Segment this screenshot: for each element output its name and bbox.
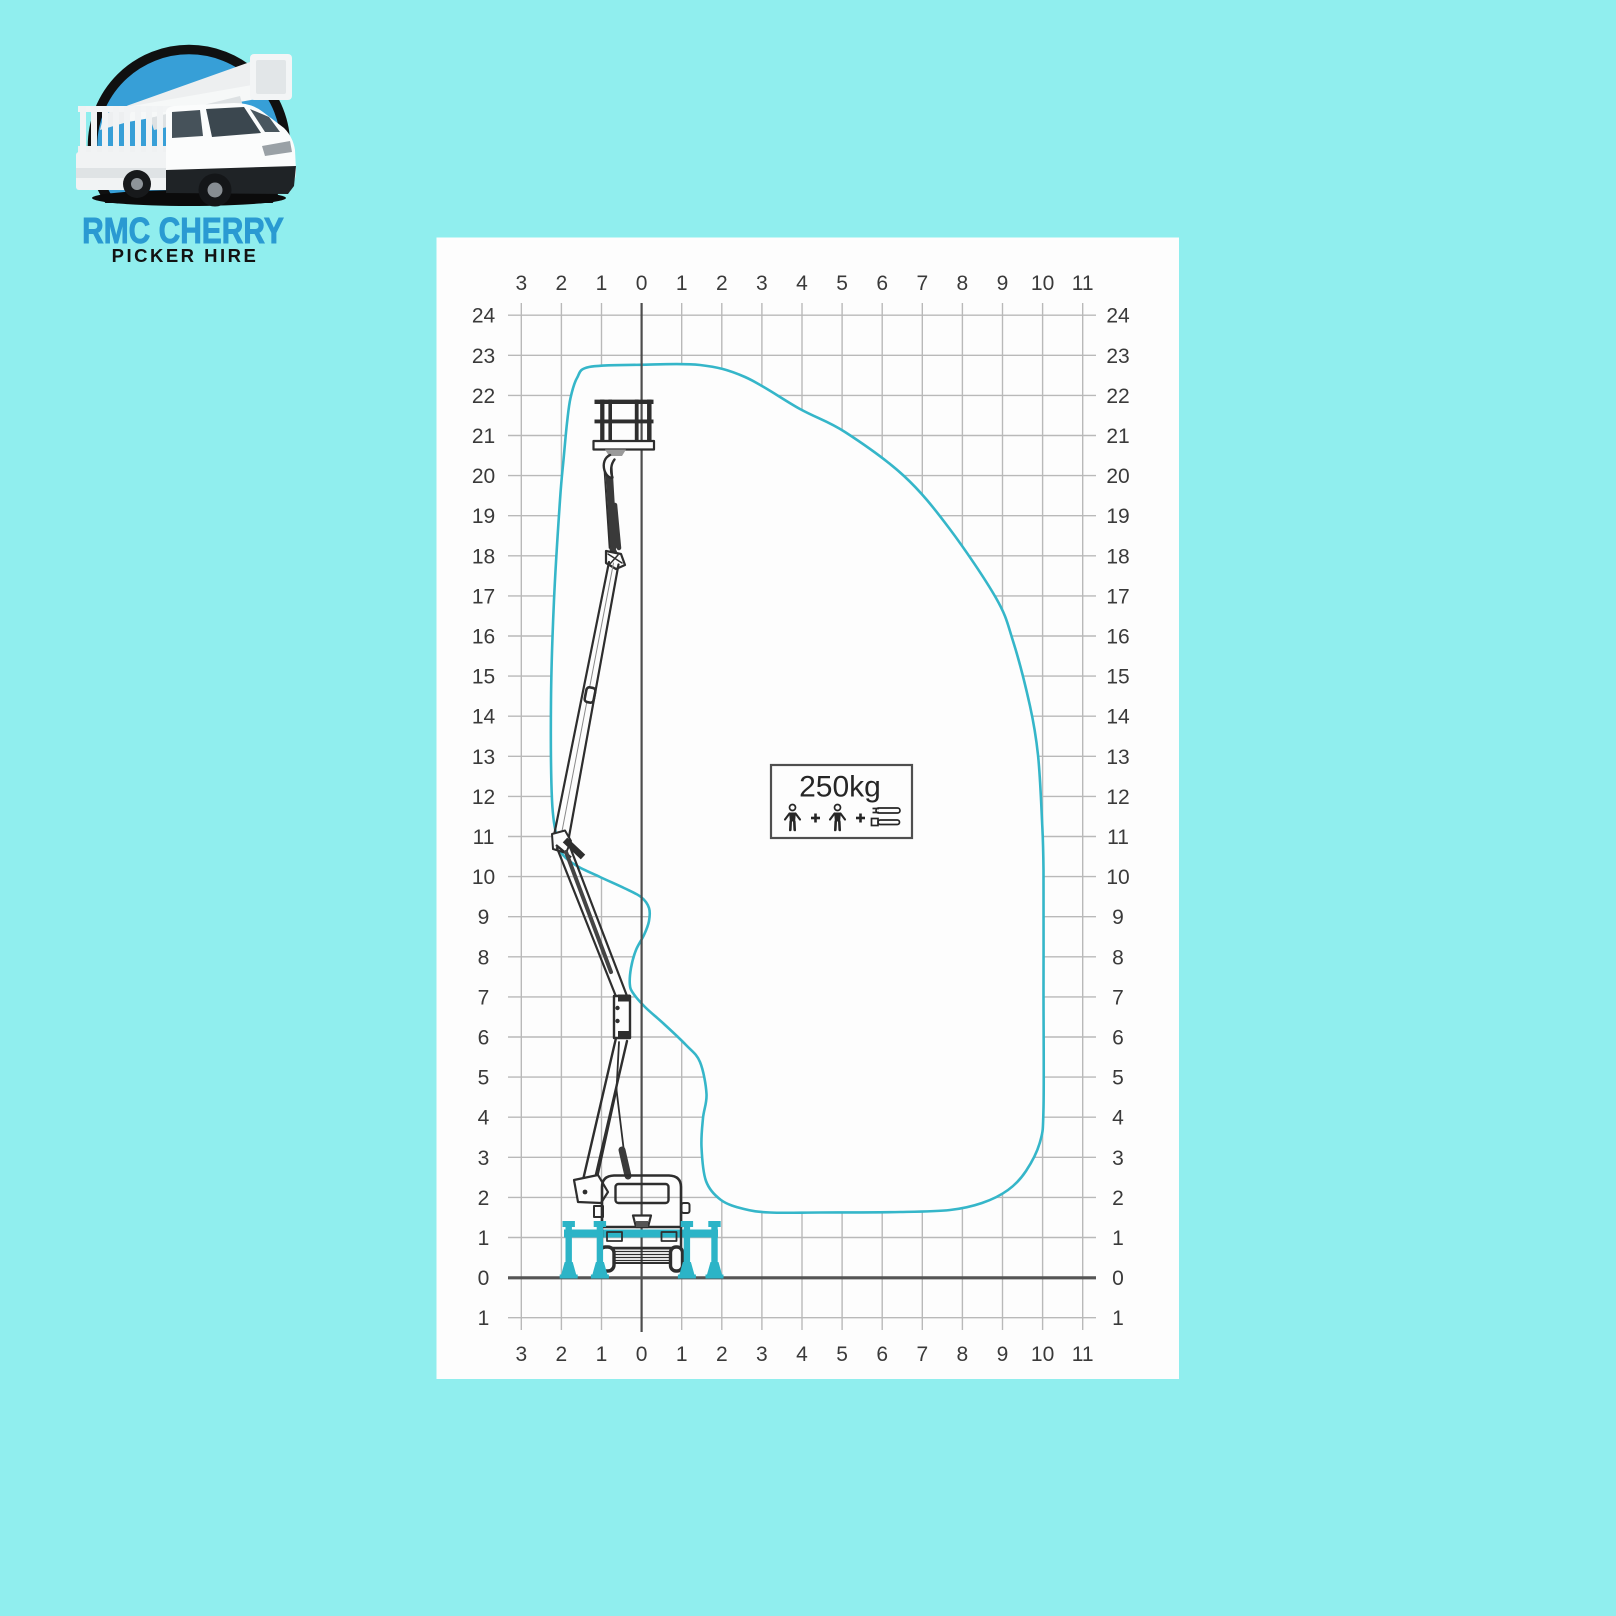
svg-text:4: 4 — [796, 272, 808, 295]
svg-text:1: 1 — [1112, 1227, 1124, 1250]
svg-text:6: 6 — [876, 1343, 888, 1366]
svg-text:14: 14 — [472, 706, 496, 729]
svg-text:1: 1 — [1112, 1307, 1124, 1330]
svg-text:14: 14 — [1106, 706, 1130, 729]
svg-text:16: 16 — [1106, 626, 1129, 649]
svg-text:11: 11 — [1072, 1343, 1094, 1366]
svg-text:2: 2 — [478, 1187, 490, 1210]
svg-text:17: 17 — [472, 585, 495, 608]
svg-text:6: 6 — [1112, 1027, 1124, 1050]
svg-text:12: 12 — [472, 786, 495, 809]
svg-text:8: 8 — [1112, 946, 1124, 969]
svg-text:10: 10 — [1106, 866, 1129, 889]
svg-text:8: 8 — [478, 946, 490, 969]
svg-text:4: 4 — [478, 1107, 490, 1130]
svg-text:2: 2 — [556, 1343, 568, 1366]
svg-text:9: 9 — [478, 906, 490, 929]
svg-text:23: 23 — [472, 345, 495, 368]
svg-text:7: 7 — [916, 1343, 928, 1366]
svg-text:10: 10 — [1031, 272, 1054, 295]
svg-text:8: 8 — [957, 272, 969, 295]
svg-text:24: 24 — [1106, 305, 1130, 328]
svg-text:21: 21 — [472, 425, 495, 448]
svg-text:7: 7 — [478, 986, 490, 1009]
svg-text:19: 19 — [1106, 505, 1129, 528]
svg-text:9: 9 — [997, 272, 1009, 295]
svg-text:24: 24 — [472, 305, 496, 328]
svg-text:PICKER HIRE: PICKER HIRE — [112, 245, 259, 266]
svg-text:0: 0 — [1112, 1267, 1124, 1290]
svg-text:2: 2 — [716, 1343, 728, 1366]
svg-text:7: 7 — [916, 272, 928, 295]
svg-text:7: 7 — [1112, 986, 1124, 1009]
svg-text:22: 22 — [1106, 385, 1129, 408]
svg-text:10: 10 — [472, 866, 495, 889]
svg-text:11: 11 — [1107, 826, 1129, 849]
svg-text:4: 4 — [1112, 1107, 1124, 1130]
svg-text:21: 21 — [1106, 425, 1129, 448]
svg-text:3: 3 — [756, 272, 768, 295]
svg-text:250kg: 250kg — [799, 771, 881, 804]
svg-text:15: 15 — [472, 666, 495, 689]
svg-text:2: 2 — [716, 272, 728, 295]
svg-text:1: 1 — [676, 1343, 688, 1366]
svg-text:9: 9 — [997, 1343, 1009, 1366]
svg-text:2: 2 — [556, 272, 568, 295]
svg-text:6: 6 — [478, 1027, 490, 1050]
svg-text:17: 17 — [1106, 585, 1129, 608]
svg-text:3: 3 — [515, 272, 527, 295]
svg-text:11: 11 — [1072, 272, 1094, 295]
svg-text:5: 5 — [478, 1067, 490, 1090]
svg-text:3: 3 — [756, 1343, 768, 1366]
svg-text:16: 16 — [472, 626, 495, 649]
svg-text:12: 12 — [1106, 786, 1129, 809]
svg-text:5: 5 — [836, 272, 848, 295]
svg-text:13: 13 — [1106, 746, 1129, 769]
svg-text:1: 1 — [478, 1307, 490, 1330]
svg-text:5: 5 — [1112, 1067, 1124, 1090]
svg-text:1: 1 — [596, 1343, 608, 1366]
svg-text:0: 0 — [636, 1343, 648, 1366]
svg-text:0: 0 — [636, 272, 648, 295]
svg-text:23: 23 — [1106, 345, 1129, 368]
svg-text:1: 1 — [478, 1227, 490, 1250]
svg-text:5: 5 — [836, 1343, 848, 1366]
svg-text:3: 3 — [515, 1343, 527, 1366]
svg-text:8: 8 — [957, 1343, 969, 1366]
svg-text:20: 20 — [1106, 465, 1129, 488]
svg-text:0: 0 — [478, 1267, 490, 1290]
svg-text:22: 22 — [472, 385, 495, 408]
svg-text:4: 4 — [796, 1343, 808, 1366]
svg-text:1: 1 — [596, 272, 608, 295]
svg-text:3: 3 — [1112, 1147, 1124, 1170]
svg-text:18: 18 — [472, 545, 495, 568]
svg-text:15: 15 — [1106, 666, 1129, 689]
svg-text:20: 20 — [472, 465, 495, 488]
svg-text:11: 11 — [473, 826, 495, 849]
svg-text:6: 6 — [876, 272, 888, 295]
svg-text:2: 2 — [1112, 1187, 1124, 1210]
svg-text:10: 10 — [1031, 1343, 1054, 1366]
svg-text:9: 9 — [1112, 906, 1124, 929]
svg-text:3: 3 — [478, 1147, 490, 1170]
svg-text:13: 13 — [472, 746, 495, 769]
svg-text:19: 19 — [472, 505, 495, 528]
svg-text:18: 18 — [1106, 545, 1129, 568]
svg-text:1: 1 — [676, 272, 688, 295]
